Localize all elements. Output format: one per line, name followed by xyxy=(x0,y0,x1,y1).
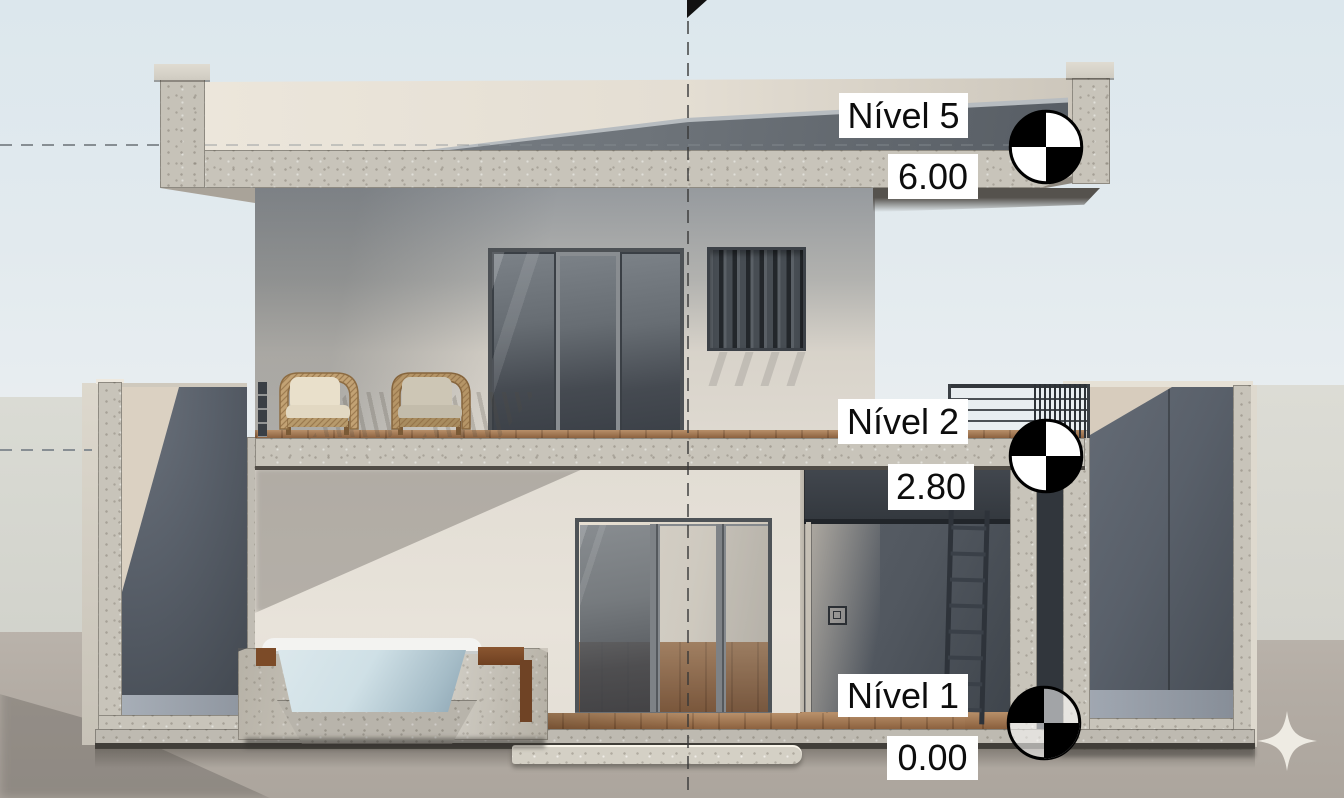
level5-elevation-label[interactable]: 6.00 xyxy=(888,154,978,199)
rightwing-right-wall-cut xyxy=(1233,385,1253,747)
tub-under-shadow xyxy=(245,738,545,748)
bay-downpipe xyxy=(806,522,811,718)
rightwing-interior-corner-seam xyxy=(1168,387,1170,707)
section-line[interactable] xyxy=(687,0,689,798)
level2-datum-line-left xyxy=(0,449,92,451)
wall-switch-inner xyxy=(833,611,841,619)
patio-back-wall-top-edge xyxy=(122,383,247,387)
level2-name-label[interactable]: Nível 2 xyxy=(838,399,968,444)
tub-water xyxy=(272,650,472,712)
chair-right xyxy=(392,373,470,435)
roof-coping-right xyxy=(1066,62,1114,78)
louver-window xyxy=(707,247,806,351)
level1-elevation-label[interactable]: 0.00 xyxy=(887,736,978,780)
chair-left xyxy=(280,373,358,435)
roof-parapet-left xyxy=(160,78,205,188)
sparkle-icon xyxy=(1256,710,1318,772)
level1-name-label[interactable]: Nível 1 xyxy=(838,674,968,717)
level1-datum-icon[interactable] xyxy=(1006,685,1082,761)
tub-wood-trim-left xyxy=(256,648,276,666)
section-flag-icon[interactable] xyxy=(687,0,709,20)
patio-floor xyxy=(122,695,247,717)
roof-coping-left xyxy=(154,64,210,80)
rightwing-outer-face xyxy=(1251,385,1257,747)
background-band-left xyxy=(0,397,95,632)
tub-wood-trim-right xyxy=(478,647,524,665)
terrace-chairs xyxy=(272,363,477,438)
patio-outer-face xyxy=(82,383,99,745)
front-step-pad xyxy=(512,745,802,764)
level1-door-frame xyxy=(575,518,772,718)
background-band-right xyxy=(1255,385,1344,640)
patio-left-wall-cut xyxy=(98,382,122,745)
rightwing-floor xyxy=(1090,690,1233,718)
level5-datum-icon[interactable] xyxy=(1008,109,1084,185)
level2-datum-icon[interactable] xyxy=(1008,418,1084,494)
rightwing-interior xyxy=(1090,387,1233,720)
balcony-left-post xyxy=(258,382,267,437)
section-view-canvas: Nível 5 6.00 Nível 2 2.80 Nível 1 0.00 xyxy=(0,0,1344,798)
level2-elevation-label[interactable]: 2.80 xyxy=(888,464,974,510)
level5-datum-line-left xyxy=(0,144,162,146)
tub-wood-trim-right-vertical xyxy=(520,660,532,722)
level5-name-label[interactable]: Nível 5 xyxy=(839,93,968,138)
level5-datum-line-roof xyxy=(205,144,1070,146)
